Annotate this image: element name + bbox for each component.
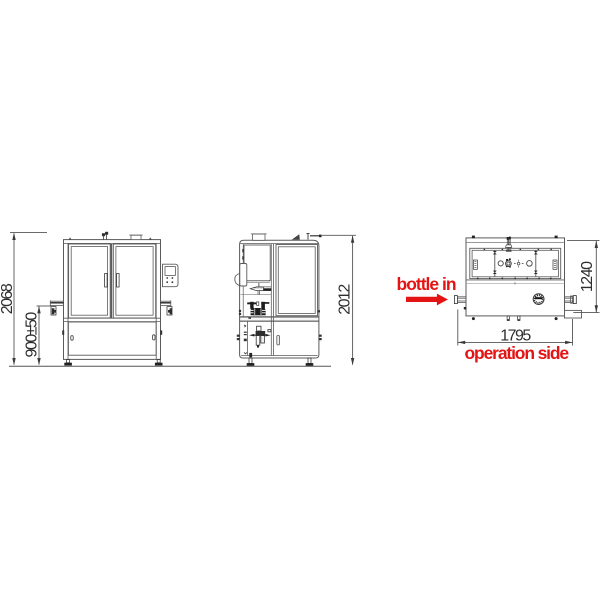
svg-text:2012: 2012 bbox=[337, 284, 354, 315]
svg-text:1240: 1240 bbox=[579, 261, 596, 292]
svg-text:900±50: 900±50 bbox=[23, 312, 40, 358]
svg-text:operation side: operation side bbox=[465, 343, 570, 363]
svg-text:bottle in: bottle in bbox=[397, 274, 456, 294]
svg-text:2068: 2068 bbox=[0, 283, 16, 314]
svg-text:1795: 1795 bbox=[500, 328, 531, 345]
